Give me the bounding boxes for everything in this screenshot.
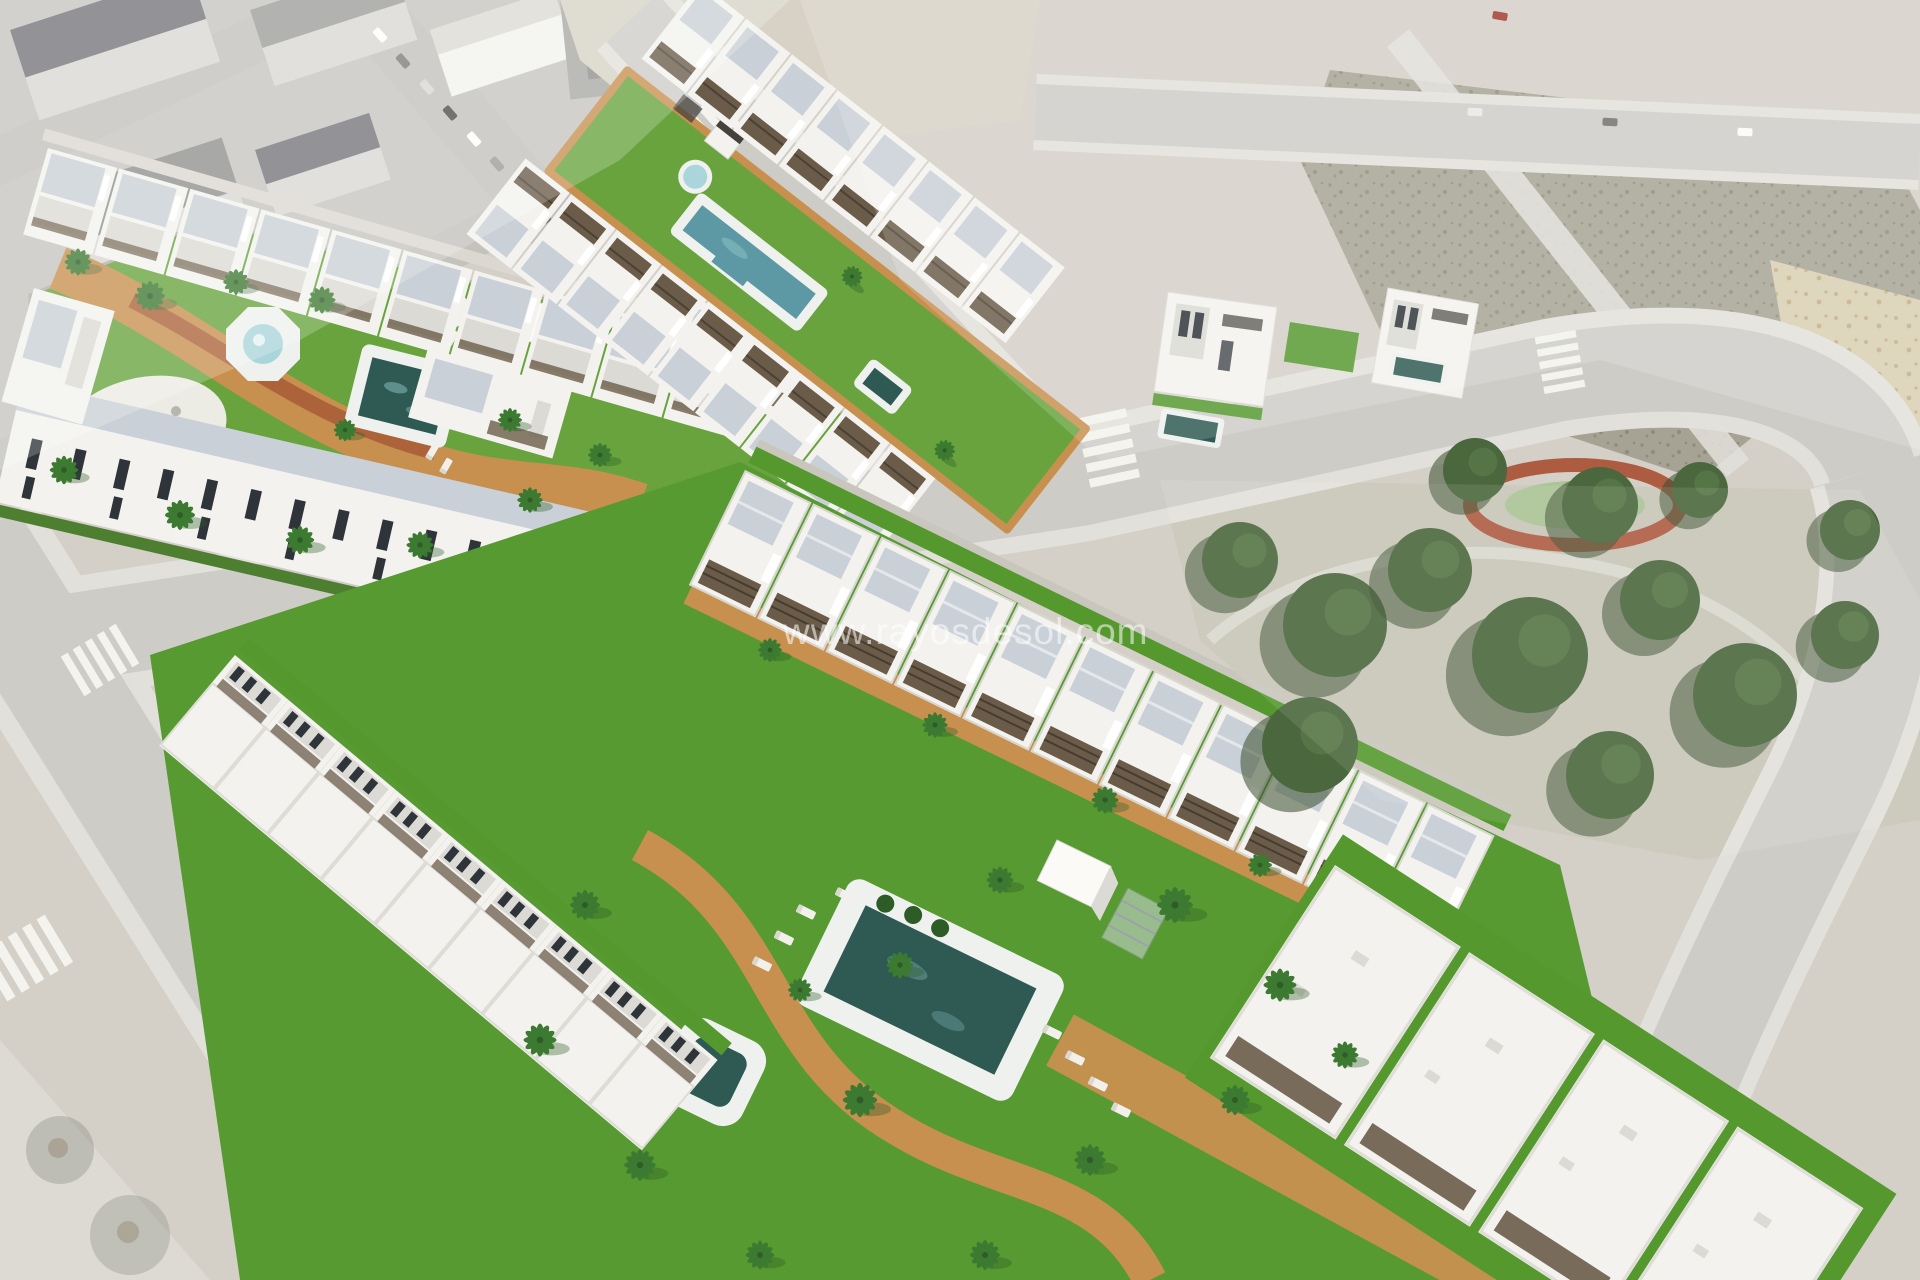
aerial-render-image: www.rayosdesol.com (0, 0, 1920, 1280)
bare-tree (117, 1221, 139, 1243)
bare-tree (48, 1138, 68, 1158)
watermark: www.rayosdesol.com (783, 611, 1149, 653)
